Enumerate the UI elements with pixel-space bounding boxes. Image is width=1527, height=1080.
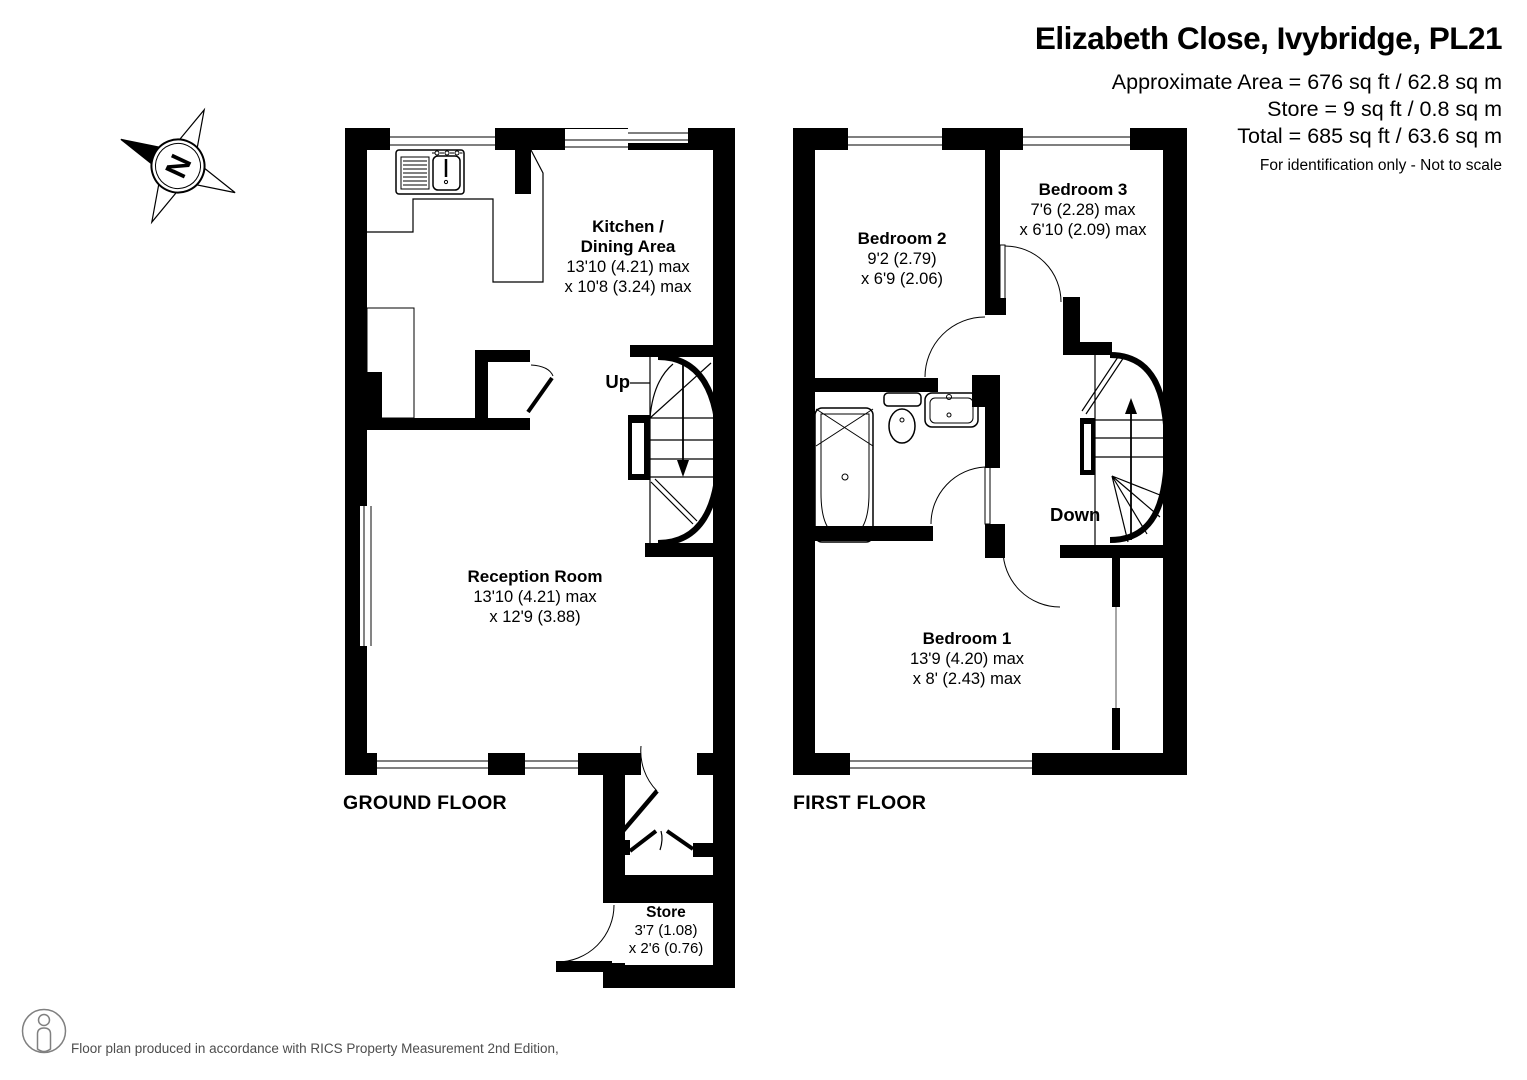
basin-icon: [925, 393, 978, 427]
reception-room-label: Reception Room 13'10 (4.21) max x 12'9 (…: [467, 567, 602, 627]
bedroom2-label: Bedroom 2 9'2 (2.79) x 6'9 (2.06): [858, 229, 947, 289]
room-dimension: x 12'9 (3.88): [467, 607, 602, 627]
kitchen-dining-label: Kitchen / Dining Area 13'10 (4.21) max x…: [565, 217, 692, 297]
total-area: Total = 685 sq ft / 63.6 sq m: [1035, 123, 1502, 150]
room-dimension: 3'7 (1.08): [629, 922, 704, 940]
kitchen-sink-icon: [396, 150, 464, 194]
room-dimension: 13'10 (4.21) max: [467, 587, 602, 607]
room-dimension: x 10'8 (3.24) max: [565, 277, 692, 297]
bathtub-icon: [815, 408, 873, 542]
compass-rose-icon: N: [95, 83, 262, 249]
bedroom1-door-swing: [1003, 550, 1060, 607]
room-dimension: x 8' (2.43) max: [910, 669, 1024, 689]
kitchen-door-swing: [528, 365, 553, 412]
footer-disclaimer: Floor plan produced in accordance with R…: [71, 1003, 685, 1080]
first-floor-openings: [1084, 424, 1091, 470]
room-dimension: x 2'6 (0.76): [629, 940, 704, 958]
approximate-area: Approximate Area = 676 sq ft / 62.8 sq m: [1035, 69, 1502, 96]
room-dimension: x 6'10 (2.09) max: [1020, 220, 1147, 240]
room-dimension: x 6'9 (2.06): [858, 269, 947, 289]
scale-disclaimer: For identification only - Not to scale: [1035, 157, 1502, 175]
person-icon: [23, 1010, 66, 1053]
room-name: Dining Area: [565, 237, 692, 257]
bedroom3-label: Bedroom 3 7'6 (2.28) max x 6'10 (2.09) m…: [1020, 180, 1147, 240]
bathroom-door-swing: [931, 467, 990, 524]
bedroom1-label: Bedroom 1 13'9 (4.20) max x 8' (2.43) ma…: [910, 629, 1024, 689]
ground-floor-title: GROUND FLOOR: [343, 792, 507, 815]
floorplan-page: N: [0, 0, 1527, 1080]
room-dimension: 7'6 (2.28) max: [1020, 200, 1147, 220]
room-name: Bedroom 1: [910, 629, 1024, 649]
footer-line1: Floor plan produced in accordance with R…: [71, 1040, 685, 1059]
stairs-down-label: Down: [1050, 504, 1100, 526]
room-dimension: 9'2 (2.79): [858, 249, 947, 269]
bedroom2-door-swing: [925, 317, 985, 377]
page-title: Elizabeth Close, Ivybridge, PL21: [1035, 20, 1502, 57]
room-name: Reception Room: [467, 567, 602, 587]
room-name: Store: [629, 904, 704, 922]
bifold-door: [630, 831, 693, 851]
stairs-up-label: Up: [568, 371, 630, 393]
area-summary: Approximate Area = 676 sq ft / 62.8 sq m…: [1035, 69, 1502, 150]
room-dimension: 13'9 (4.20) max: [910, 649, 1024, 669]
store-area: Store = 9 sq ft / 0.8 sq m: [1035, 96, 1502, 123]
room-name: Bedroom 3: [1020, 180, 1147, 200]
bedroom3-door-swing: [1000, 245, 1061, 302]
title-block: Elizabeth Close, Ivybridge, PL21 Approxi…: [1035, 20, 1502, 175]
room-dimension: 13'10 (4.21) max: [565, 257, 692, 277]
room-name: Bedroom 2: [858, 229, 947, 249]
toilet-icon: [884, 393, 921, 443]
first-floor-title: FIRST FLOOR: [793, 792, 926, 815]
store-label: Store 3'7 (1.08) x 2'6 (0.76): [629, 904, 704, 958]
room-name: Kitchen /: [565, 217, 692, 237]
